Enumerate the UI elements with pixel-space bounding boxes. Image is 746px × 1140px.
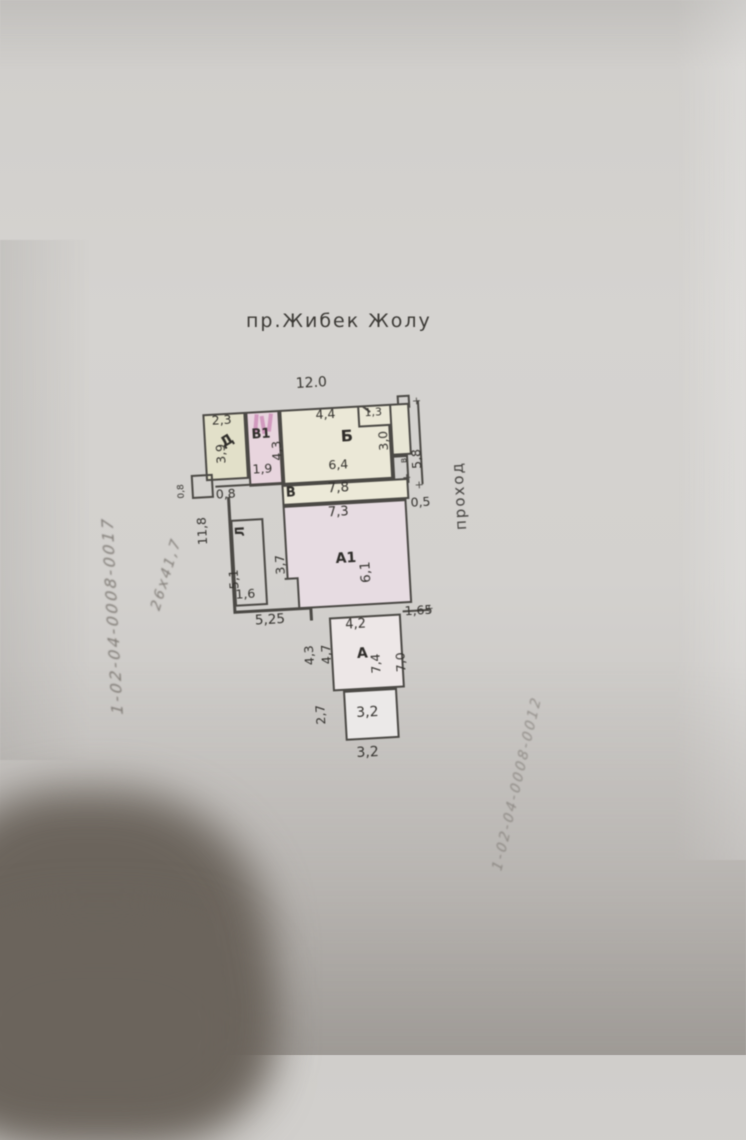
dim-room-d-width: 2,3	[211, 414, 232, 428]
dim-closet: 1,3	[364, 406, 382, 418]
dim-room-b-top: 4,4	[315, 408, 336, 422]
dim-room-a1-top: 7,3	[328, 505, 349, 519]
dim-room-b-left: 4,3	[270, 440, 284, 461]
dim-wing-depth: 3,0	[377, 430, 391, 451]
dim-room-a-right-inner: 7,4	[369, 653, 383, 674]
room-b-label: Б	[340, 426, 353, 446]
room-l-label: Л	[234, 526, 247, 537]
dim-room-l-width: 1,6	[235, 588, 256, 602]
wall-segment	[309, 606, 312, 620]
dim-room-a-bottom-left: 2,7	[314, 704, 328, 725]
passage-label: проход	[450, 461, 469, 531]
paper-shading-top	[0, 0, 746, 70]
floor-plan-drawing: + + + + 12.0 2,3 Д В1 1,9 4,4 Б 6,4 1,3 …	[166, 369, 528, 797]
photo-of-floor-plan: пр.Жибек Жолу 1-02-04-0008-0017 26х41,7 …	[0, 0, 746, 1055]
dim-room-a-top-right: 1,65	[404, 604, 432, 618]
dimension-tick: +	[412, 395, 422, 406]
dim-room-l-depth: 5,1	[228, 569, 242, 590]
dim-right-height: 5,8	[410, 449, 424, 470]
dimension-tick: +	[414, 479, 424, 490]
left-notch-outline	[191, 474, 214, 499]
dim-passage-width: 0,5	[410, 496, 431, 510]
room-a1-label: А1	[335, 550, 356, 567]
dim-corridor-length: 7,8	[327, 481, 349, 496]
dim-room-d-depth: 3,9	[215, 444, 229, 465]
dim-room-a-right-outer: 7,0	[394, 652, 408, 673]
dim-box-outer-width: 3,2	[356, 745, 379, 760]
room-b1-label: В1	[251, 427, 271, 443]
dim-left-offset-small: 0,8	[177, 484, 187, 499]
dim-room-a1-left: 3,7	[274, 554, 288, 575]
dim-room-a-left-outer: 4,3	[303, 645, 317, 666]
corridor-label: В	[285, 485, 296, 501]
dim-top-width: 12.0	[295, 375, 327, 391]
dimension-tick: +	[402, 472, 412, 483]
dim-room-b1-bottom: 1,9	[252, 462, 273, 476]
dim-box-inner-width: 3,2	[356, 705, 379, 720]
room-a1-step-cut	[285, 577, 301, 610]
dimension-line-right	[417, 400, 423, 484]
dim-room-a1-right: 6,1	[359, 561, 374, 583]
wing-room-outline	[389, 403, 412, 456]
dim-left-height: 11,8	[196, 517, 210, 545]
dim-room-a-top: 4,2	[345, 617, 366, 631]
dim-room-b-bottom: 6,4	[328, 458, 349, 472]
corner-shadow-object	[0, 920, 260, 1140]
dim-room-a-left-inner: 4,7	[320, 644, 334, 665]
dim-bottom-left-width: 5,25	[255, 613, 286, 628]
dim-left-offset: 0,8	[216, 488, 237, 502]
street-name-label: пр.Жибек Жолу	[246, 310, 432, 332]
